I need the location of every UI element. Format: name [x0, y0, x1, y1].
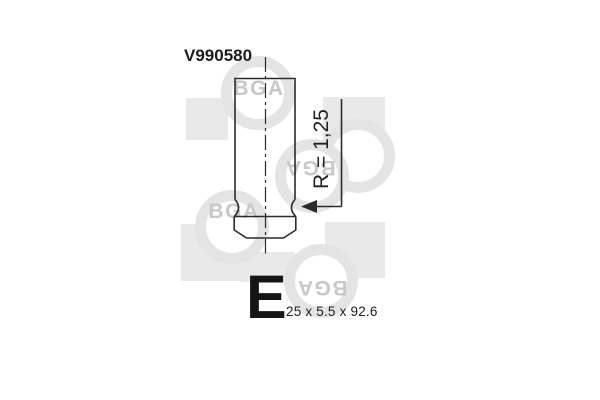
valve-technical-drawing — [0, 0, 600, 400]
valve-groove-right — [291, 200, 295, 217]
valve-groove-left — [234, 200, 238, 217]
part-number: V990580 — [184, 46, 252, 66]
radius-dimension-label: R = 1,25 — [310, 109, 334, 189]
valve-catalog-image: BGA BGA BGA BGA V990580 R = 1,25 E 25 x … — [0, 0, 600, 400]
radius-arrow-icon — [301, 200, 317, 213]
valve-type-letter: E — [246, 267, 287, 328]
valve-dimensions-label: 25 x 5.5 x 92.6 — [286, 304, 378, 319]
